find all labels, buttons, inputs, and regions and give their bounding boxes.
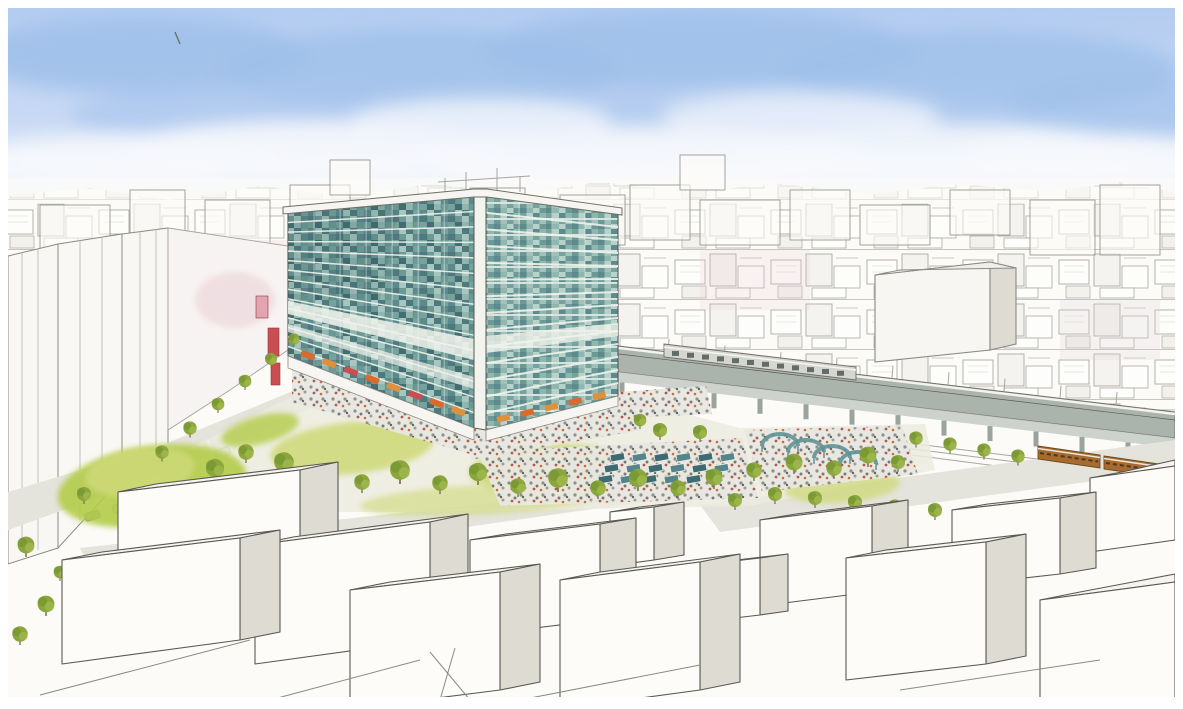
- train-window: [837, 371, 844, 376]
- train-window: [732, 358, 739, 363]
- train-window: [822, 369, 829, 374]
- white-box-building: [350, 564, 540, 709]
- box-side: [1060, 492, 1096, 574]
- viaduct-pier: [942, 421, 947, 436]
- train-window: [747, 360, 754, 365]
- vertical-sign-banner: [268, 328, 279, 356]
- box-front: [1090, 466, 1175, 552]
- vertical-sign-banner: [256, 296, 268, 318]
- viaduct-pier: [988, 426, 993, 441]
- viaduct-pier: [850, 410, 855, 425]
- viaduct-pier: [1080, 437, 1085, 452]
- box-front: [350, 572, 500, 709]
- corner-column: [474, 196, 486, 430]
- box-front: [846, 542, 986, 680]
- box-front: [560, 562, 700, 709]
- train-window: [762, 362, 769, 367]
- skyline-building: [680, 155, 725, 190]
- pink-wash-3: [1060, 300, 1160, 360]
- train-window: [807, 367, 814, 372]
- viaduct-pier: [712, 393, 717, 408]
- skyline-building: [330, 160, 370, 195]
- box-side: [500, 564, 540, 690]
- skyline-building: [1100, 185, 1160, 255]
- skyline-building: [790, 190, 850, 240]
- skyline-building: [860, 205, 930, 245]
- skyline-building: [700, 200, 780, 245]
- skyline-building: [1030, 200, 1095, 255]
- box-front: [1040, 582, 1175, 709]
- big-white-building-right: [875, 262, 1016, 362]
- train-window: [672, 351, 679, 356]
- pink-wash-2: [700, 250, 810, 310]
- box-side: [700, 554, 740, 690]
- train-window: [777, 364, 784, 369]
- viaduct-pier: [1034, 432, 1039, 447]
- skyline-building: [950, 190, 1010, 235]
- rendering-frame: [0, 0, 1183, 709]
- box-side: [240, 530, 280, 640]
- skyline-building: [630, 185, 690, 240]
- train-window: [702, 355, 709, 360]
- white-box-building: [846, 534, 1026, 680]
- train-window: [792, 365, 799, 370]
- vertical-sign-banner: [271, 363, 280, 385]
- white-box-building: [560, 554, 740, 709]
- viaduct-pier: [758, 399, 763, 414]
- watercolor-rendering-canvas: [0, 0, 1183, 709]
- box-side: [654, 502, 684, 560]
- train-window: [717, 356, 724, 361]
- train-window: [687, 353, 694, 358]
- viaduct-pier: [804, 404, 809, 419]
- box-side: [986, 534, 1026, 664]
- slab-c: [122, 228, 168, 478]
- box-side: [760, 554, 788, 615]
- floor-line: [288, 242, 474, 243]
